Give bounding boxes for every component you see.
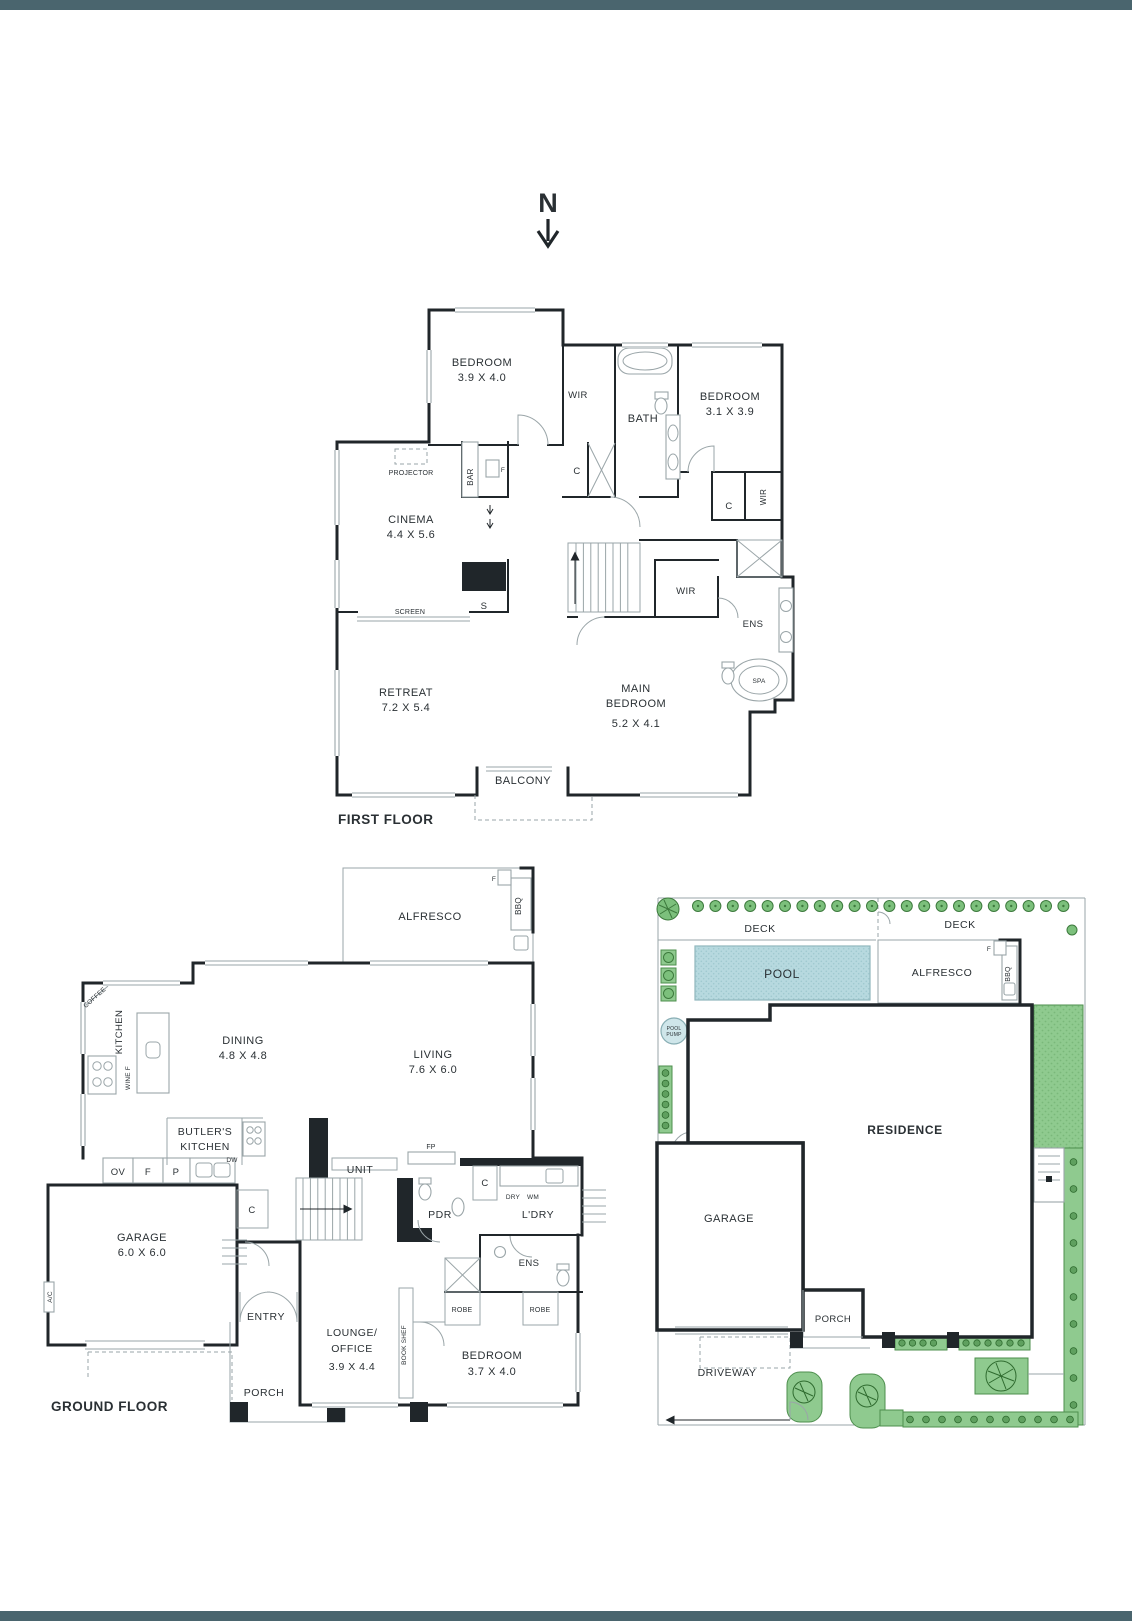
pool-pump-icon: POOL PUMP [661, 1018, 687, 1044]
room-label-cinema: CINEMA [388, 514, 434, 526]
label-f-kitchen: F [145, 1167, 151, 1178]
window-icon [370, 961, 488, 965]
balcony-outline [475, 795, 592, 820]
label-ov: OV [111, 1167, 126, 1178]
kitchen-island [137, 1013, 169, 1093]
site-plan: POOL PUMP [657, 898, 1085, 1428]
room-dims-retreat: 7.2 X 5.4 [382, 702, 431, 714]
toilet-icon-bath [655, 392, 668, 414]
room-label-bath: BATH [628, 413, 659, 425]
site-label-f: F [987, 946, 991, 953]
window-icon [312, 1403, 398, 1407]
room-label-main1: MAIN [621, 683, 651, 695]
room-label-living: LIVING [413, 1049, 452, 1061]
room-label-garage-gf: GARAGE [117, 1232, 167, 1244]
label-bbq-gf: BBQ [514, 897, 523, 915]
window-icon [640, 793, 738, 797]
window-icon [81, 1094, 85, 1146]
floorplan-page: N [0, 0, 1132, 1621]
ground-floor-title: GROUND FLOOR [51, 1399, 168, 1414]
window-icon [205, 961, 308, 965]
site-label-bbq: BBQ [1005, 966, 1012, 982]
room-label-kitchen: KITCHEN [114, 1010, 125, 1055]
window-icon [335, 670, 339, 756]
label-c-bed2: C [725, 501, 732, 512]
label-c-laundry: C [481, 1178, 488, 1189]
room-label-retreat: RETREAT [379, 687, 433, 699]
room-label-porch-gf: PORCH [244, 1387, 284, 1399]
ground-floor-plan: ALFRESCO F BBQ COFFEE KITCHEN WINE F DIN… [44, 868, 606, 1422]
room-label-pdr: PDR [428, 1209, 452, 1221]
label-p: P [173, 1167, 180, 1178]
projector-box [395, 449, 427, 464]
room-dims-garage-gf: 6.0 X 6.0 [118, 1247, 167, 1259]
label-unit: UNIT [347, 1164, 374, 1176]
window-icon [447, 1403, 563, 1407]
pool-pump-label2: PUMP [666, 1032, 682, 1038]
room-label-ens-gf: ENS [519, 1258, 540, 1269]
label-robe1: ROBE [452, 1307, 473, 1314]
label-wine-f: WINE F [125, 1066, 132, 1090]
toilet-icon-ens-gf [557, 1264, 569, 1286]
label-s: S [481, 601, 488, 612]
label-coffee: COFFEE [82, 986, 108, 1010]
site-label-deck-right: DECK [944, 919, 975, 931]
north-label: N [538, 188, 558, 218]
stairs-first-floor [568, 543, 640, 612]
room-label-balcony: BALCONY [495, 775, 551, 787]
room-label-butlers2: KITCHEN [180, 1141, 230, 1153]
window-icon [692, 343, 762, 347]
label-wm: WM [527, 1194, 539, 1201]
window-icon [576, 1333, 580, 1392]
tree-icon [1067, 925, 1077, 935]
label-bar-fridge: F [501, 467, 505, 474]
floorplan-drawing: N [0, 0, 1132, 1621]
label-bar: BAR [466, 468, 475, 485]
room-dims-main: 5.2 X 4.1 [612, 718, 661, 730]
tree-planters [661, 950, 676, 1001]
window-icon [81, 1002, 85, 1054]
site-label-driveway: DRIVEWAY [698, 1367, 757, 1379]
label-projector: PROJECTOR [389, 470, 434, 477]
first-floor-plan: BEDROOM 3.9 X 4.0 WIR BATH BEDROOM 3.1 X… [335, 308, 793, 827]
label-c-hall: C [573, 466, 580, 477]
room-dims-bedroom-gf: 3.7 X 4.0 [468, 1366, 517, 1378]
bathtub-icon [618, 348, 672, 374]
room-dims-cinema: 4.4 X 5.6 [387, 529, 436, 541]
label-screen: SCREEN [395, 609, 425, 616]
room-label-ens-ff: ENS [743, 619, 764, 630]
window-icon [486, 767, 552, 771]
room-label-bedroom2: BEDROOM [700, 391, 760, 403]
room-label-main2: BEDROOM [606, 698, 666, 710]
label-dry: DRY [506, 1194, 521, 1201]
room-dims-lounge: 3.9 X 4.4 [329, 1361, 376, 1373]
room-dims-dining: 4.8 X 4.8 [219, 1050, 268, 1062]
window-icon [427, 350, 431, 403]
toilet-icon-pdr [419, 1178, 431, 1200]
site-label-pool: POOL [764, 967, 800, 981]
label-bookshelf: BOOK SHEF [401, 1325, 408, 1365]
site-label-alfresco: ALFRESCO [912, 967, 973, 979]
room-label-lounge2: OFFICE [331, 1343, 373, 1355]
window-icon [622, 343, 668, 347]
label-wir-bed2: WIR [759, 489, 768, 505]
north-arrow-icon: N [538, 188, 558, 246]
window-icon [103, 981, 180, 985]
label-spa: SPA [752, 678, 766, 685]
label-wir-main: WIR [676, 586, 696, 597]
toilet-icon-ens [722, 662, 734, 684]
stairs-ground-floor [296, 1178, 362, 1240]
site-label-deck-left: DECK [744, 923, 775, 935]
site-label-garage: GARAGE [704, 1213, 754, 1225]
room-label-alfresco-gf: ALFRESCO [398, 911, 461, 923]
cooktop-icon [88, 1056, 116, 1094]
room-label-bedroom-gf: BEDROOM [462, 1350, 522, 1362]
label-c-pantry: C [248, 1205, 255, 1216]
room-label-wir1: WIR [568, 390, 588, 401]
window-icon [352, 793, 455, 797]
room-label-lounge1: LOUNGE/ [327, 1327, 378, 1339]
room-dims-bedroom1: 3.9 X 4.0 [458, 372, 507, 384]
first-floor-title: FIRST FLOOR [338, 812, 434, 827]
room-label-bedroom1: BEDROOM [452, 357, 512, 369]
label-robe2: ROBE [530, 1307, 551, 1314]
room-label-dining: DINING [222, 1035, 264, 1047]
window-icon [531, 1078, 535, 1130]
cinema-speaker-box [462, 562, 506, 591]
room-label-entry: ENTRY [247, 1311, 285, 1323]
label-f-alfresco: F [492, 876, 496, 883]
room-label-ldry: L'DRY [522, 1209, 554, 1221]
room-dims-bedroom2: 3.1 X 3.9 [706, 406, 755, 418]
room-dims-living: 7.6 X 6.0 [409, 1064, 458, 1076]
site-label-residence: RESIDENCE [867, 1123, 942, 1137]
first-floor-outer-walls [337, 310, 793, 795]
window-icon [335, 450, 339, 525]
label-dw: DW [226, 1157, 238, 1164]
site-label-porch: PORCH [815, 1314, 851, 1325]
label-ac: A/C [47, 1291, 54, 1303]
window-icon [531, 1004, 535, 1056]
room-label-butlers1: BUTLER'S [178, 1126, 232, 1138]
site-garage [657, 1143, 803, 1330]
label-fp: FP [426, 1144, 435, 1151]
window-icon [455, 308, 535, 312]
window-icon [335, 560, 339, 608]
